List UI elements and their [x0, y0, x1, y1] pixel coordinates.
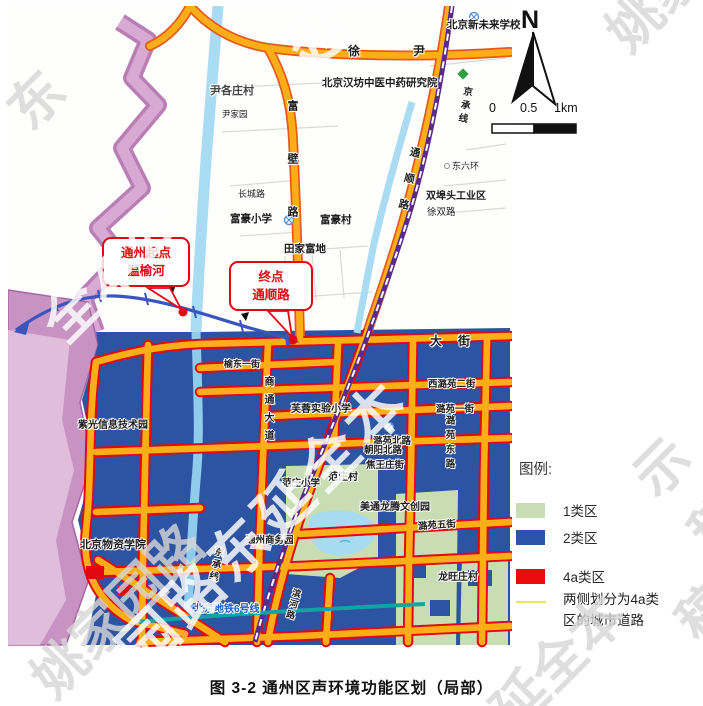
- callout-start-point: 通州起点 温榆河: [102, 237, 190, 287]
- label-xushuang-road: 徐双路: [427, 208, 456, 218]
- zone1-label: 1类区: [563, 500, 598, 520]
- scale-bar: [492, 124, 576, 133]
- legend-item-zone2: 2类区: [516, 527, 598, 547]
- label-yudong-1st-street: 榆东一街: [224, 360, 260, 369]
- label-jiaowangzhuang-street: 焦王庄街: [366, 461, 404, 471]
- north-arrow-icon: [511, 32, 555, 104]
- legend-item-zone4a: 4a类区: [516, 566, 605, 586]
- figure-caption: 图 3-2 通州区声环境功能区划（局部）: [0, 676, 703, 698]
- label-chaoyang-north-road: 朝阳北路: [364, 446, 402, 456]
- scale-05: 0.5: [520, 101, 537, 115]
- label-ziguang-tech-park: 紫光信息技术园: [78, 421, 148, 431]
- label-metro-line6: 北京地铁6号线: [194, 605, 260, 615]
- scale-1km: 1km: [554, 101, 578, 115]
- map-figure: 北京新未来学校 徐 尹 北京汉坊中医中药研究院 尹各庄村 尹家园 长城路 富豪小…: [0, 0, 703, 706]
- legend-4a-road-label-line2: 区的城市道路: [563, 611, 659, 632]
- label-xiluyuan-2nd-street: 西潞苑二街: [428, 380, 476, 390]
- legend-4a-road-line: [516, 601, 546, 603]
- north-label: N: [521, 6, 539, 35]
- label-longwangzhuang-village: 龙旺庄村: [438, 573, 478, 583]
- label-research-institute: 北京汉坊中医中药研究院: [322, 78, 438, 89]
- label-road-yin: 尹: [413, 45, 425, 57]
- zone1-swatch: [516, 503, 545, 518]
- callout-end-line1: 终点: [237, 268, 305, 286]
- label-luyuan-east-road: 潞苑东路: [444, 415, 454, 473]
- label-yinjiayuan: 尹家园: [222, 110, 248, 119]
- label-shuangbutou-industry: 双埠头工业区: [426, 192, 486, 202]
- label-fuhao-village: 富豪村: [320, 215, 352, 226]
- legend-title: 图例:: [519, 458, 552, 479]
- label-fubi-road: 富壁路: [286, 100, 297, 259]
- zone4a-label: 4a类区: [563, 566, 605, 586]
- callout-end-point: 终点 通顺路: [229, 261, 313, 311]
- label-road-xu: 徐: [348, 45, 360, 57]
- label-shangtong-avenue: 商通大道: [262, 376, 272, 448]
- callout-start-line2: 温榆河: [110, 262, 182, 280]
- label-meitong-park: 美通龙腾文创园: [360, 503, 430, 513]
- zone4a-swatch: [516, 569, 545, 584]
- label-furong-school: 芙蓉实验小学: [291, 405, 351, 415]
- legend-4a-road-label: 两侧划分为4a类 区的城市道路: [563, 590, 659, 632]
- label-luyuan-5th-street: 潞苑五街: [418, 520, 457, 532]
- label-luyuan-1st-street: 潞苑一街: [436, 405, 474, 415]
- label-tianjiafudi: 田家富地: [284, 244, 326, 255]
- zone2-swatch: [516, 530, 545, 545]
- label-east-6th-ring: 东六环: [452, 162, 479, 171]
- legend-item-zone1: 1类区: [516, 500, 598, 520]
- label-tongzhou-business-park: 通州商务园: [246, 536, 294, 546]
- zone2-label: 2类区: [563, 527, 598, 547]
- callout-start-line1: 通州起点: [110, 244, 182, 262]
- legend-4a-road-label-line1: 两侧划分为4a类: [563, 590, 659, 611]
- label-fuhao-school: 富豪小学: [230, 214, 272, 225]
- label-dajie: 大街: [430, 335, 486, 347]
- callout-end-line2: 通顺路: [237, 286, 305, 304]
- scale-0: 0: [489, 101, 496, 115]
- label-school-xinweilai: 北京新未来学校: [447, 20, 521, 31]
- label-fanzhuang-school: 范庄小学: [282, 479, 320, 489]
- label-wuzi-university: 北京物资学院: [80, 540, 146, 551]
- label-yingezhuang-village: 尹各庄村: [210, 86, 254, 97]
- label-changcheng-road: 长城路: [238, 190, 265, 199]
- label-fanzhuang-village: 范庄村: [328, 473, 358, 483]
